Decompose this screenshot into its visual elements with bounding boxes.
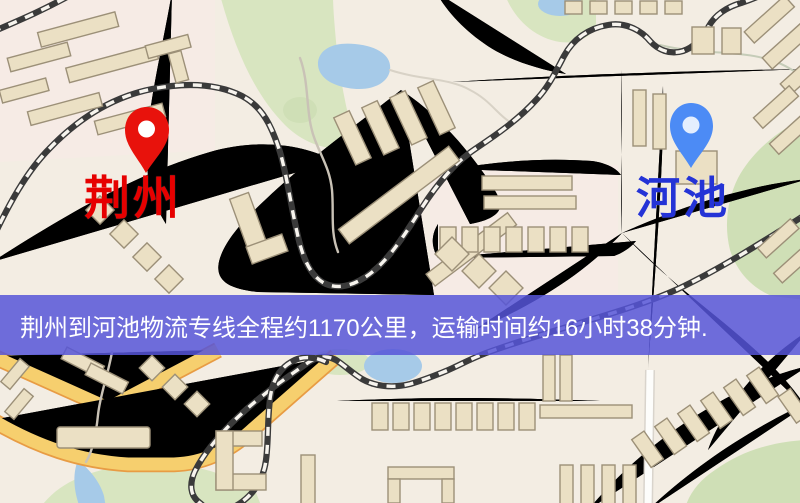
destination-place-label: 河池 [636, 177, 730, 221]
route-info-banner: 荆州到河池物流专线全程约1170公里，运输时间约16小时38分钟. [0, 295, 800, 355]
origin-place-label: 荆州 [84, 175, 182, 221]
route-info-text: 荆州到河池物流专线全程约1170公里，运输时间约16小时38分钟. [0, 308, 708, 343]
map-image: 荆州 河池 荆州到河池物流专线全程约1170公里，运输时间约16小时38分钟. [0, 0, 800, 503]
map-canvas [0, 0, 800, 503]
